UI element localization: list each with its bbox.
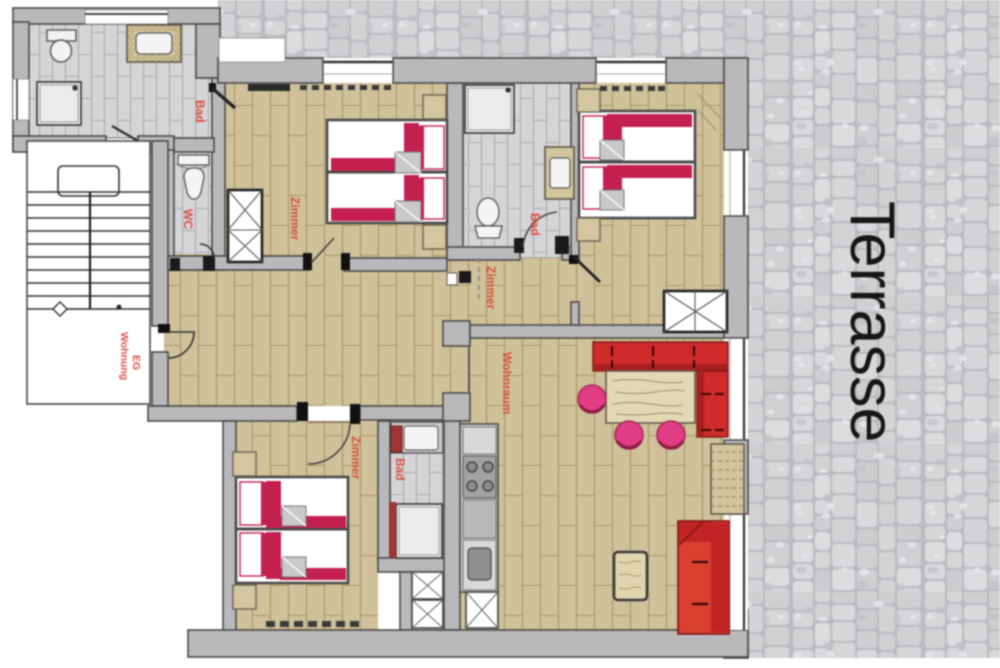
svg-text:Zimmer: Zimmer: [484, 266, 498, 310]
svg-text:Zimmer: Zimmer: [349, 436, 363, 480]
svg-text:Bad: Bad: [193, 100, 207, 123]
svg-text:Wohnung: Wohnung: [118, 332, 130, 380]
svg-text:Zimmer: Zimmer: [288, 197, 302, 241]
svg-text:Terrasse: Terrasse: [837, 201, 907, 443]
svg-text:Wohnraum: Wohnraum: [500, 352, 514, 414]
svg-text:Bad: Bad: [528, 213, 542, 236]
svg-text:WC: WC: [181, 209, 195, 229]
svg-text:Bad: Bad: [393, 458, 407, 481]
svg-text:EG: EG: [130, 355, 142, 370]
